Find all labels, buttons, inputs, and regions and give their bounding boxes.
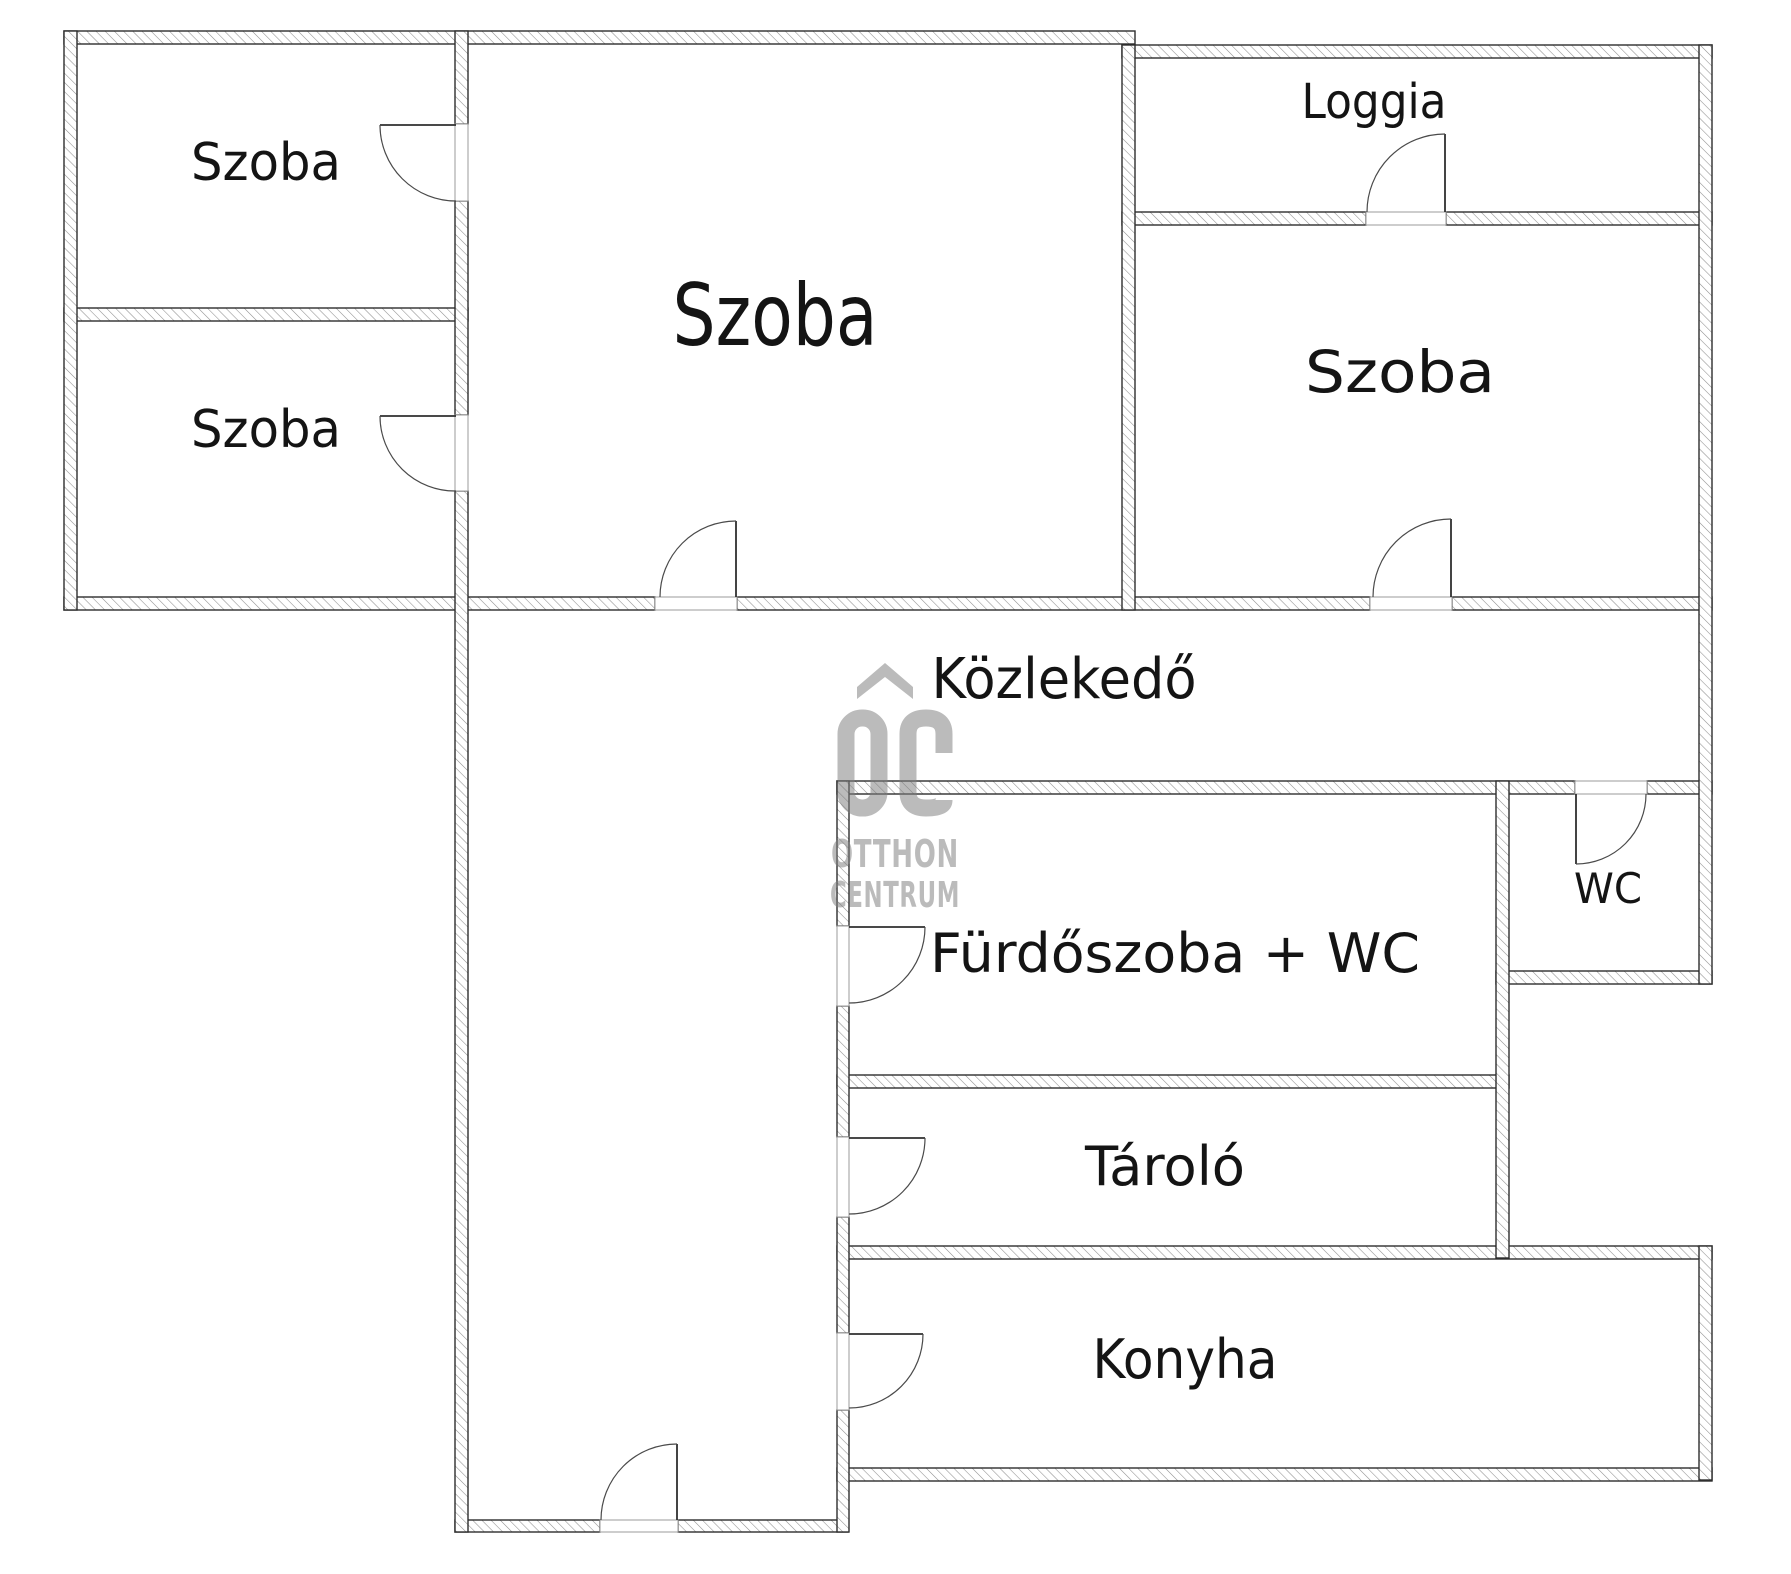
- wall-corridor-top-right-segment: [1452, 597, 1712, 610]
- wall-loggia-bottom-left-segment: [1122, 212, 1366, 225]
- door-opening-kitchen: [837, 1333, 849, 1410]
- floor-plan-canvas: OTTHON CENTRUM Szoba Szoba Szoba Loggia …: [0, 0, 1791, 1574]
- wall-hall-left: [455, 491, 468, 1532]
- door-opening-room-center: [655, 597, 737, 610]
- wall-center-room-right: [1122, 45, 1135, 610]
- room-label-wc: WC: [1574, 864, 1642, 913]
- wall-loggia-bottom-right-segment: [1446, 212, 1712, 225]
- wall-left-rooms-divider: [64, 308, 468, 321]
- wall-corridor-top-left-segment: [64, 597, 655, 610]
- room-label-szoba-right: Szoba: [1305, 338, 1495, 406]
- room-label-furdoszoba: Fürdőszoba + WC: [930, 922, 1420, 985]
- floor-plan: OTTHON CENTRUM Szoba Szoba Szoba Loggia …: [0, 0, 1791, 1574]
- wall-right-outer-kitchen: [1699, 1246, 1712, 1480]
- wall-top-main: [64, 31, 1135, 44]
- wall-bathroom-left-b: [837, 1006, 849, 1137]
- room-label-tarolo: Tároló: [1084, 1135, 1245, 1198]
- wall-bathroom-bottom: [837, 1075, 1509, 1088]
- wall-left-outer: [64, 31, 77, 610]
- wall-hall-bottom-right-segment: [678, 1520, 848, 1532]
- door-opening-storage: [837, 1137, 849, 1217]
- wall-storage-left: [837, 1217, 849, 1333]
- door-opening-loggia: [1366, 212, 1446, 225]
- door-opening-room-top-left: [455, 124, 468, 201]
- wall-hall-bottom-left-segment: [455, 1520, 600, 1532]
- room-label-konyha: Konyha: [1093, 1328, 1278, 1391]
- wall-wc-left: [1496, 781, 1509, 1258]
- wall-kitchen-bottom: [837, 1468, 1712, 1481]
- watermark-line2: CENTRUM: [830, 875, 960, 916]
- wall-corridor-top-mid-segment: [737, 597, 1370, 610]
- wall-kitchen-left: [837, 1410, 849, 1532]
- door-opening-wc: [1575, 781, 1647, 794]
- room-label-szoba-top-left: Szoba: [191, 133, 341, 193]
- door-opening-room-right: [1370, 597, 1452, 610]
- door-opening-room-bottom-left: [455, 415, 468, 491]
- door-opening-entrance: [600, 1520, 678, 1532]
- wall-top-loggia: [1122, 45, 1712, 58]
- room-label-szoba-center: Szoba: [673, 266, 878, 366]
- wall-left-rooms-right-a: [455, 31, 468, 124]
- room-label-szoba-bottom-left: Szoba: [191, 400, 341, 460]
- room-label-loggia: Loggia: [1302, 74, 1447, 130]
- watermark-line1: OTTHON: [831, 832, 959, 876]
- door-opening-bathroom: [837, 926, 849, 1006]
- wall-corridor-bottom-left-segment: [837, 781, 1575, 794]
- wall-kitchen-top: [837, 1246, 1712, 1259]
- wall-right-outer-upper: [1699, 45, 1712, 984]
- wall-wc-bottom: [1496, 971, 1712, 984]
- room-label-kozlekedo: Közlekedő: [932, 647, 1197, 712]
- wall-left-rooms-right-b: [455, 201, 468, 415]
